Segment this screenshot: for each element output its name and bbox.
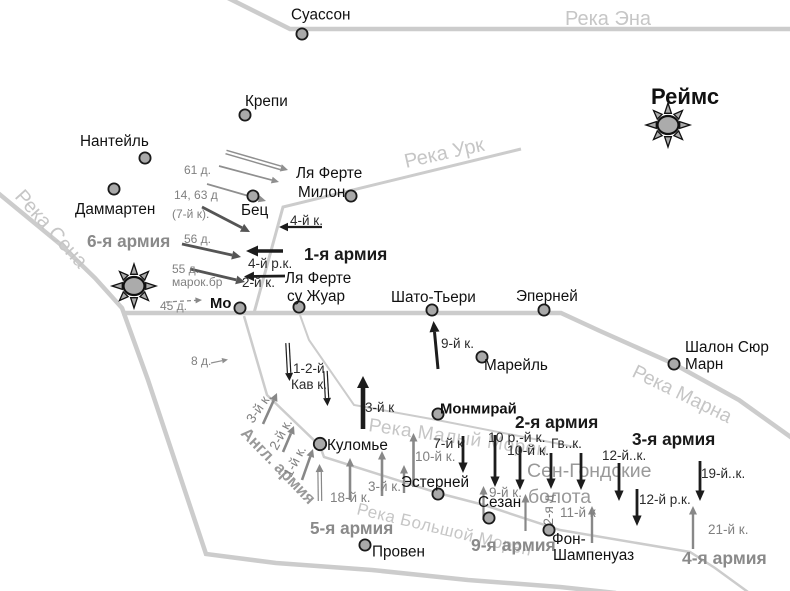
svg-text:Шампенуаз: Шампенуаз bbox=[553, 547, 634, 564]
svg-text:3-й к.: 3-й к. bbox=[368, 479, 401, 494]
svg-text:7-й к: 7-й к bbox=[433, 435, 464, 451]
svg-text:Шато-Тьери: Шато-Тьери bbox=[391, 289, 476, 306]
svg-text:су Жуар: су Жуар bbox=[287, 288, 345, 305]
svg-text:Марн: Марн bbox=[685, 356, 723, 373]
svg-text:1-2-й: 1-2-й bbox=[293, 361, 325, 376]
svg-text:56 д.: 56 д. bbox=[184, 232, 211, 246]
svg-text:12-й р.к.: 12-й р.к. bbox=[639, 492, 691, 507]
svg-text:Нантейль: Нантейль bbox=[80, 133, 149, 150]
svg-text:Фон-: Фон- bbox=[552, 531, 586, 548]
svg-text:4-я армия: 4-я армия bbox=[682, 548, 767, 568]
svg-text:Монмирай: Монмирай bbox=[440, 402, 517, 418]
svg-text:Гв..к.: Гв..к. bbox=[551, 436, 582, 451]
svg-text:21-й к.: 21-й к. bbox=[708, 522, 748, 537]
svg-text:Куломье: Куломье bbox=[327, 437, 388, 454]
svg-text:3-й к: 3-й к bbox=[365, 400, 394, 415]
svg-text:Марейль: Марейль bbox=[484, 357, 548, 374]
svg-text:12-й..к.: 12-й..к. bbox=[602, 448, 646, 463]
svg-text:2-й к.: 2-й к. bbox=[242, 275, 275, 290]
svg-text:Ля Ферте: Ля Ферте bbox=[285, 270, 351, 287]
svg-text:Провен: Провен bbox=[372, 544, 425, 561]
svg-text:Реймс: Реймс bbox=[651, 84, 719, 109]
svg-text:(7-й к).: (7-й к). bbox=[172, 207, 209, 221]
svg-text:9-я армия: 9-я армия bbox=[471, 535, 556, 555]
svg-text:Эстерней: Эстерней bbox=[401, 474, 469, 491]
svg-text:19-й..к.: 19-й..к. bbox=[701, 466, 745, 481]
svg-text:Суассон: Суассон bbox=[291, 7, 350, 24]
svg-text:Крепи: Крепи bbox=[245, 93, 288, 110]
svg-text:18-й к.: 18-й к. bbox=[330, 490, 370, 505]
svg-text:11-й к: 11-й к bbox=[560, 505, 596, 520]
svg-text:Кав к.: Кав к. bbox=[291, 377, 327, 392]
svg-text:Милон: Милон bbox=[298, 184, 345, 201]
svg-text:1-я армия: 1-я армия bbox=[304, 244, 387, 264]
svg-text:14, 63 д: 14, 63 д bbox=[174, 188, 218, 202]
svg-text:Даммартен: Даммартен bbox=[75, 201, 155, 218]
svg-text:45 д.: 45 д. bbox=[160, 299, 187, 313]
svg-text:5-я армия: 5-я армия bbox=[310, 518, 393, 538]
svg-text:10-й к.: 10-й к. bbox=[415, 449, 455, 464]
svg-text:3-я армия: 3-я армия bbox=[632, 429, 715, 449]
svg-text:10-й к.: 10-й к. bbox=[507, 442, 549, 458]
svg-text:Шалон Сюр: Шалон Сюр bbox=[685, 339, 769, 356]
svg-text:6-я армия: 6-я армия bbox=[87, 231, 170, 251]
svg-text:марок.бр: марок.бр bbox=[172, 275, 223, 289]
svg-text:Бец: Бец bbox=[241, 202, 269, 219]
svg-text:Ля Ферте: Ля Ферте bbox=[296, 165, 362, 182]
svg-text:55 д.: 55 д. bbox=[172, 262, 199, 276]
svg-text:4-й р.к.: 4-й р.к. bbox=[248, 256, 292, 271]
svg-text:Река Эна: Река Эна bbox=[565, 8, 652, 30]
svg-text:9-й к.: 9-й к. bbox=[441, 336, 474, 351]
svg-text:Мо: Мо bbox=[210, 296, 231, 312]
svg-text:8 д.: 8 д. bbox=[191, 354, 211, 368]
svg-text:Эперней: Эперней bbox=[516, 288, 578, 305]
svg-text:Сезан: Сезан bbox=[478, 494, 521, 511]
svg-text:Сен-Гондские: Сен-Гондские bbox=[527, 460, 651, 482]
svg-text:4-й к.: 4-й к. bbox=[290, 213, 323, 228]
svg-text:61 д.: 61 д. bbox=[184, 163, 211, 177]
